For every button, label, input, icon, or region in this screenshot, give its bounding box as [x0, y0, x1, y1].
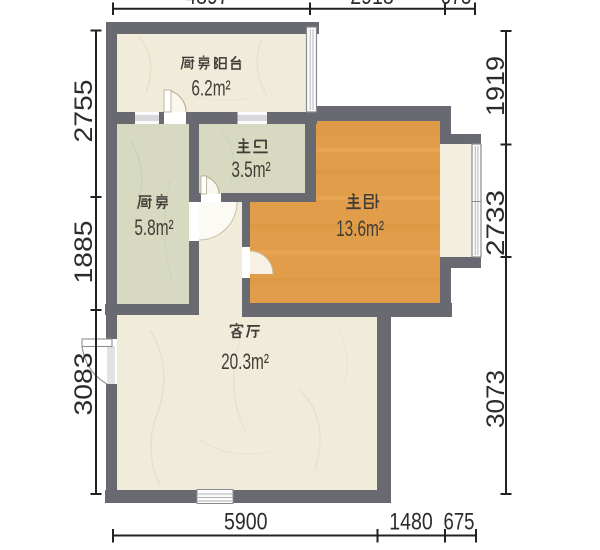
svg-text:3083: 3083 [70, 353, 98, 416]
svg-text:675: 675 [444, 509, 475, 536]
svg-text:6.2m²: 6.2m² [191, 77, 230, 101]
svg-text:2918: 2918 [350, 0, 394, 10]
svg-text:13.6m²: 13.6m² [336, 217, 384, 241]
svg-text:3073: 3073 [482, 370, 510, 428]
svg-text:675: 675 [441, 0, 472, 10]
svg-text:5.8m²: 5.8m² [134, 216, 173, 240]
svg-text:1919: 1919 [482, 56, 510, 116]
svg-text:2755: 2755 [70, 80, 98, 143]
svg-text:1885: 1885 [70, 221, 98, 284]
svg-text:2733: 2733 [482, 190, 510, 256]
svg-text:4897: 4897 [185, 0, 229, 10]
svg-text:5900: 5900 [224, 509, 268, 536]
svg-text:3.5m²: 3.5m² [231, 158, 270, 182]
svg-text:20.3m²: 20.3m² [221, 350, 269, 374]
svg-text:1480: 1480 [389, 509, 433, 536]
